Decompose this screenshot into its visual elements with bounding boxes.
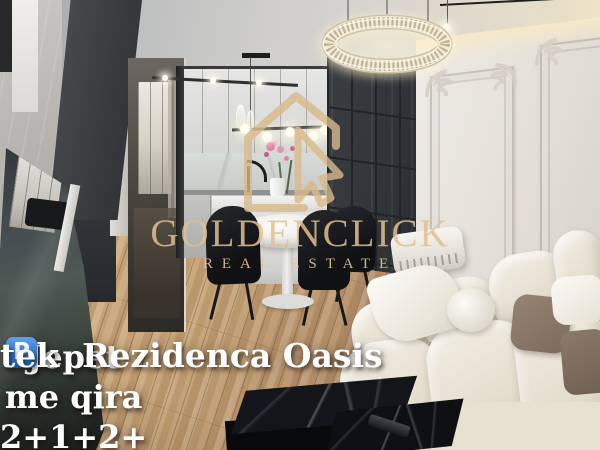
dining-table-base [262,294,314,309]
moulding-ornament-icon [488,57,518,91]
apartment-listing-photo: GOLDENCLICK REAL ESTATE Jepet me qira 2+… [0,0,600,450]
house-with-click-cursor-icon [232,86,350,212]
taupe-pillow [559,328,600,396]
white-pillow [550,274,600,326]
pendant-ceiling-mount [242,53,270,58]
ring-chandelier-icon [320,0,455,78]
watermark-tagline: REAL ESTATE [150,256,450,273]
moulding-ornament-icon [534,34,564,68]
bolster-pillow [447,288,495,332]
watermark-brand: GOLDENCLICK [40,211,560,256]
caption-line2: tek Rezidenca Oasis [0,337,383,375]
window-frame-strip [12,0,38,112]
mirror-window-reflection [138,82,172,194]
